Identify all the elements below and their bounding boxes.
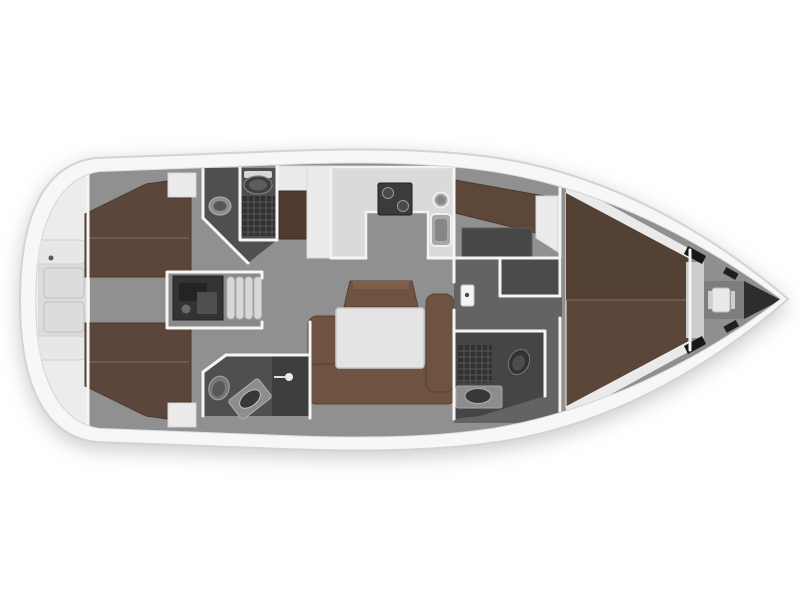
toilet-port-bowl xyxy=(249,180,267,191)
stern-locker-panel xyxy=(38,262,90,338)
salon-bench-island-top xyxy=(352,281,410,289)
galley-sink-round-basin xyxy=(437,196,446,205)
burner-1 xyxy=(383,188,394,199)
burner-2 xyxy=(398,201,409,212)
closet-floor xyxy=(500,258,562,296)
yacht-floorplan-canvas: { "diagram": { "kind": "sailing-yacht-in… xyxy=(0,0,800,600)
windlass-flange-right xyxy=(731,291,735,309)
salon-table xyxy=(336,308,424,368)
shower-stall-starboard xyxy=(272,355,310,416)
door-handle-dot xyxy=(465,293,469,297)
sink-forward xyxy=(465,389,491,404)
transom-latch-dot xyxy=(49,256,54,261)
galley-sink-rect-basin xyxy=(435,219,447,241)
engine-detail-b xyxy=(197,292,217,314)
engine-pulley xyxy=(182,305,191,314)
anchor-windlass xyxy=(712,288,730,312)
tall-cabinet xyxy=(307,166,331,258)
settee-right-arm xyxy=(426,294,454,392)
sink-port-basin xyxy=(214,201,227,211)
step-2 xyxy=(236,277,244,319)
yacht-floorplan xyxy=(0,0,800,600)
shower-head-icon xyxy=(285,373,293,381)
wardrobe-starboard xyxy=(168,403,196,427)
wardrobe-port xyxy=(168,173,196,197)
windlass-flange-left xyxy=(708,291,712,309)
cabin-door-wood xyxy=(279,191,307,239)
step-3 xyxy=(245,277,253,319)
chart-table xyxy=(462,228,532,258)
step-1 xyxy=(227,277,235,319)
step-4 xyxy=(254,277,262,319)
